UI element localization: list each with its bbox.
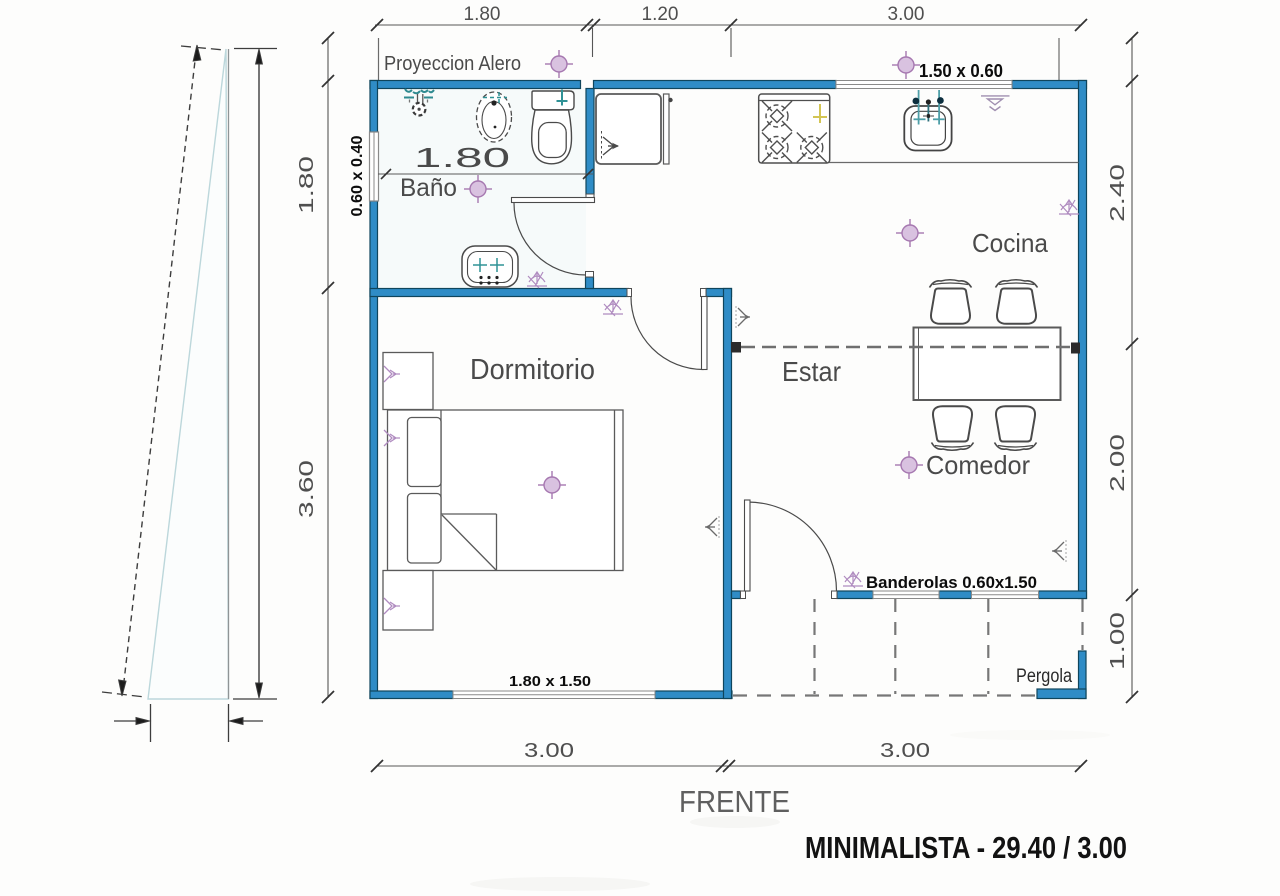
svg-text:2.40: 2.40 <box>1107 164 1129 222</box>
svg-text:1.50 x 0.60: 1.50 x 0.60 <box>919 61 1003 81</box>
svg-text:1.80: 1.80 <box>296 156 318 214</box>
svg-text:Baño: Baño <box>400 174 457 202</box>
svg-text:Dormitorio: Dormitorio <box>470 354 595 386</box>
svg-text:3.00: 3.00 <box>524 740 574 762</box>
svg-text:1.80: 1.80 <box>464 4 501 25</box>
svg-text:1.00: 1.00 <box>1107 612 1129 670</box>
svg-text:3.00: 3.00 <box>880 740 930 762</box>
svg-text:FRENTE: FRENTE <box>679 784 790 819</box>
svg-text:Estar: Estar <box>782 356 841 387</box>
svg-text:Cocina: Cocina <box>972 228 1049 258</box>
svg-text:Pergola: Pergola <box>1016 666 1072 687</box>
svg-text:MINIMALISTA - 29.40 / 3.00: MINIMALISTA - 29.40 / 3.00 <box>805 830 1127 865</box>
svg-text:0.60 x 0.40: 0.60 x 0.40 <box>349 135 366 216</box>
svg-text:2.00: 2.00 <box>1107 434 1129 492</box>
svg-text:Banderolas 0.60x1.50: Banderolas 0.60x1.50 <box>866 573 1037 592</box>
svg-text:Comedor: Comedor <box>926 450 1030 480</box>
svg-text:3.60: 3.60 <box>296 460 318 518</box>
svg-text:3.00: 3.00 <box>888 4 925 25</box>
svg-text:1.80: 1.80 <box>414 142 510 173</box>
svg-text:1.80 x 1.50: 1.80 x 1.50 <box>509 673 591 690</box>
svg-text:1.20: 1.20 <box>642 4 679 25</box>
svg-text:Proyeccion Alero: Proyeccion Alero <box>384 53 521 75</box>
